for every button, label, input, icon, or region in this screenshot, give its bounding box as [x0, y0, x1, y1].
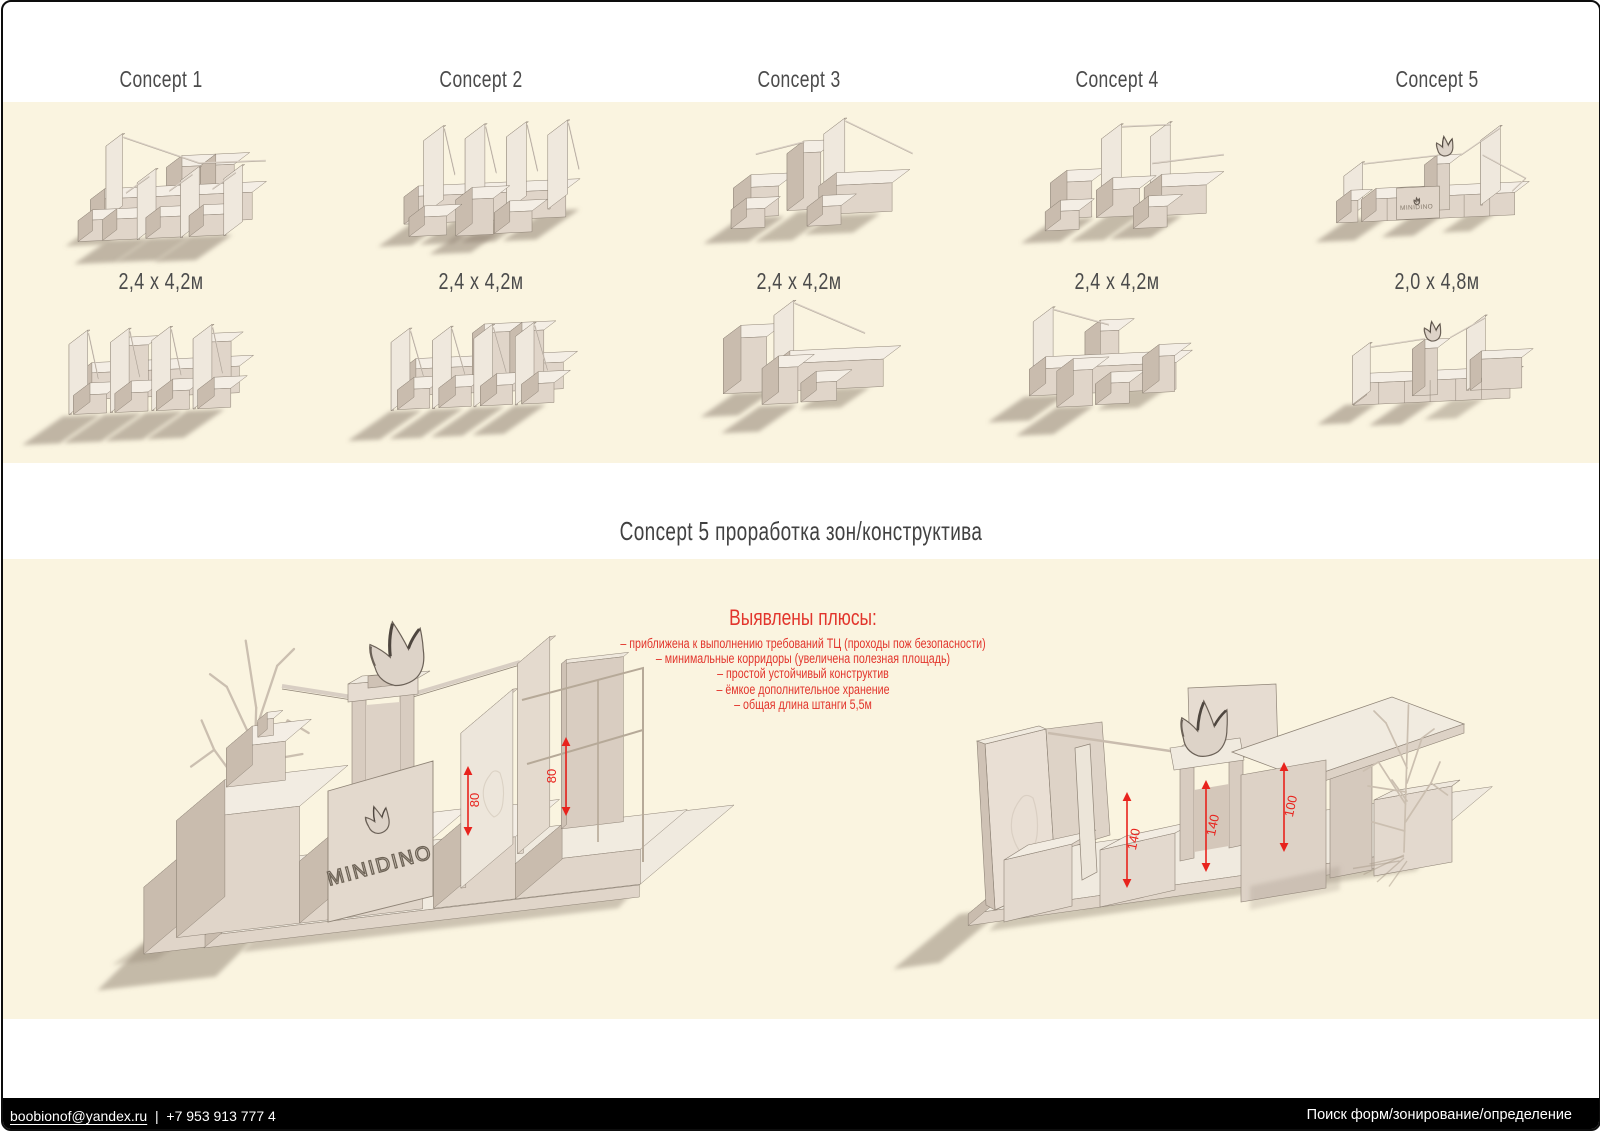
svg-text:80: 80: [544, 769, 559, 783]
svg-text:80: 80: [467, 793, 482, 807]
